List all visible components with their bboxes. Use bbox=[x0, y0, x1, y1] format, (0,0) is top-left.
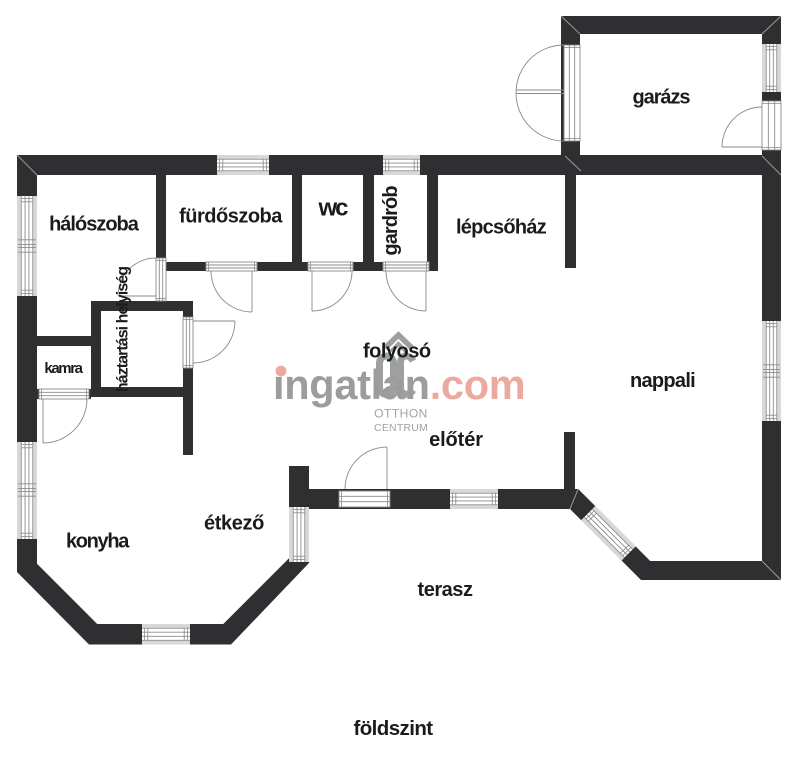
svg-text:nappali: nappali bbox=[630, 370, 695, 392]
svg-text:CENTRUM: CENTRUM bbox=[374, 422, 428, 434]
svg-text:gardrób: gardrób bbox=[380, 186, 402, 256]
svg-text:háztartási helyiség: háztartási helyiség bbox=[115, 267, 132, 392]
svg-text:előtér: előtér bbox=[429, 429, 483, 451]
svg-text:földszint: földszint bbox=[353, 717, 433, 740]
svg-text:ingatlan.com: ingatlan.com bbox=[273, 361, 525, 408]
svg-text:garázs: garázs bbox=[633, 87, 691, 109]
svg-text:folyosó: folyosó bbox=[363, 341, 431, 363]
svg-text:kamra: kamra bbox=[44, 360, 83, 377]
svg-text:hálószoba: hálószoba bbox=[49, 214, 140, 236]
svg-text:wc: wc bbox=[317, 195, 348, 222]
svg-text:étkező: étkező bbox=[204, 513, 264, 535]
svg-text:fürdőszoba: fürdőszoba bbox=[179, 206, 283, 228]
svg-text:lépcsőház: lépcsőház bbox=[456, 217, 547, 239]
svg-text:konyha: konyha bbox=[66, 531, 130, 553]
svg-text:OTTHON: OTTHON bbox=[374, 407, 428, 421]
svg-text:terasz: terasz bbox=[418, 579, 473, 601]
